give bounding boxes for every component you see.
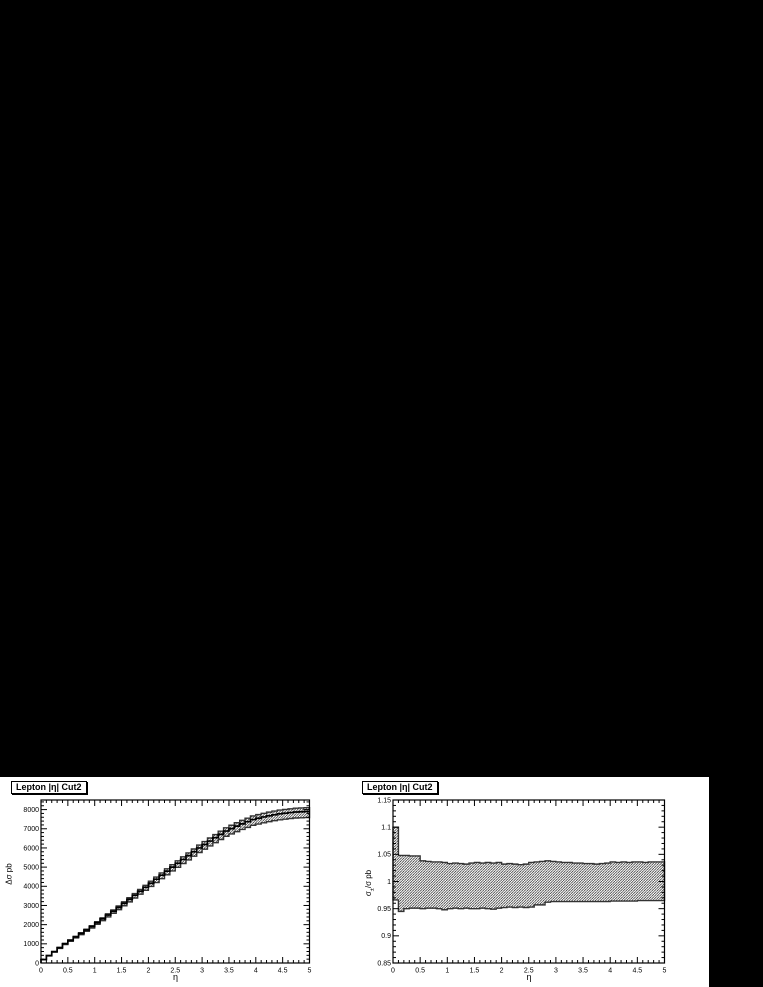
y-tick-label: 3000 [23, 903, 39, 910]
y-tick-label: 6000 [23, 845, 39, 852]
plot-title: Lepton |η| Cut2 [362, 781, 438, 794]
y-tick-label: 2000 [23, 922, 39, 929]
y-axis-label: σ±/σ pb [364, 870, 376, 896]
x-axis-label: η [352, 972, 706, 982]
y-tick-label: 8000 [23, 807, 39, 814]
y-tick-label: 0 [35, 960, 39, 967]
central-histogram-line [41, 812, 310, 963]
uncertainty-band [41, 808, 310, 960]
sigma-ratio-plot: 00.511.522.533.544.550.850.90.9511.051.1… [355, 777, 709, 987]
y-tick-label: 0.95 [377, 906, 391, 913]
x-axis-label: η [0, 972, 353, 982]
y-tick-label: 1000 [23, 941, 39, 948]
panel-sigma-ratio: 00.511.522.533.544.550.850.90.9511.051.1… [355, 777, 709, 987]
y-tick-label: 1.05 [377, 852, 391, 859]
uncertainty-band [393, 827, 665, 911]
screenshot-root: { "style": { "page_background": "#000000… [0, 0, 763, 987]
y-axis-label-rest: /σ pb [364, 870, 373, 888]
y-axis-label-sub: ± [370, 888, 376, 891]
plot-frame [41, 800, 310, 963]
plot-canvas-strip: 00.511.522.533.544.550100020003000400050… [0, 777, 709, 987]
y-tick-label: 0.85 [377, 960, 391, 967]
y-axis-label: Δσ pb [5, 863, 14, 884]
y-tick-label: 1.15 [377, 797, 391, 804]
panel-delta-sigma: 00.511.522.533.544.550100020003000400050… [0, 777, 355, 987]
y-tick-label: 4000 [23, 884, 39, 891]
y-tick-label: 5000 [23, 865, 39, 872]
y-tick-label: 7000 [23, 826, 39, 833]
delta-sigma-plot: 00.511.522.533.544.550100020003000400050… [0, 777, 355, 987]
y-tick-label: 0.9 [381, 933, 391, 940]
y-tick-label: 1 [387, 879, 391, 886]
y-axis-label-base: σ [364, 891, 373, 896]
plot-title: Lepton |η| Cut2 [11, 781, 87, 794]
y-tick-label: 1.1 [381, 825, 391, 832]
